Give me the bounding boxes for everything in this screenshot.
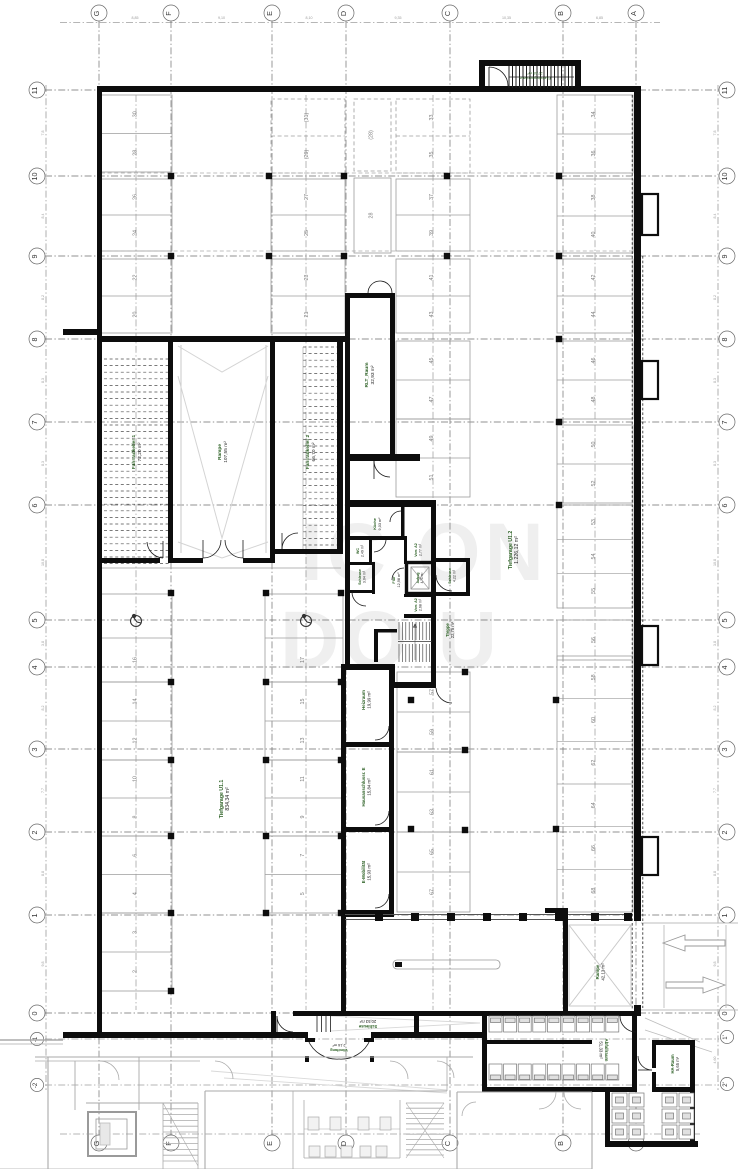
svg-text:10: 10 — [720, 173, 729, 181]
svg-text:8,3: 8,3 — [41, 461, 45, 466]
svg-text:58: 58 — [591, 674, 597, 680]
svg-text:9: 9 — [30, 255, 39, 259]
svg-text:8,8: 8,8 — [41, 871, 45, 876]
svg-text:10,8: 10,8 — [713, 559, 717, 566]
svg-text:2: 2 — [133, 970, 139, 973]
svg-text:2: 2 — [720, 831, 729, 835]
svg-text:67: 67 — [430, 889, 436, 895]
svg-text:8: 8 — [720, 338, 729, 342]
svg-text:39: 39 — [429, 230, 435, 236]
svg-text:C: C — [443, 1141, 452, 1146]
svg-text:-2: -2 — [33, 1082, 39, 1088]
svg-text:12,98 m²: 12,98 m² — [397, 572, 401, 588]
svg-text:28: 28 — [133, 150, 139, 156]
svg-text:(29): (29) — [304, 150, 310, 160]
svg-text:47: 47 — [429, 397, 435, 403]
svg-text:Abfallraum: Abfallraum — [604, 1039, 609, 1062]
svg-text:7,7: 7,7 — [713, 788, 717, 793]
svg-text:43: 43 — [429, 312, 435, 318]
svg-text:Flur: Flur — [392, 576, 396, 584]
svg-text:59: 59 — [430, 729, 436, 735]
svg-text:66,70 m²: 66,70 m² — [311, 442, 317, 461]
svg-text:5: 5 — [720, 619, 729, 623]
svg-text:Schleuse: Schleuse — [358, 1024, 377, 1029]
svg-text:6: 6 — [133, 854, 139, 857]
svg-text:Aufzug: Aufzug — [416, 573, 420, 584]
svg-text:C: C — [443, 11, 452, 16]
svg-text:D: D — [339, 11, 348, 16]
svg-text:Hausanschlussr. E: Hausanschlussr. E — [361, 767, 366, 806]
svg-text:2: 2 — [30, 831, 39, 835]
svg-text:24: 24 — [133, 230, 139, 236]
svg-text:2,16 m²: 2,16 m² — [332, 1043, 346, 1047]
svg-text:12: 12 — [133, 738, 139, 744]
svg-text:11: 11 — [300, 776, 306, 782]
svg-text:49: 49 — [429, 436, 435, 442]
svg-text:44: 44 — [591, 312, 597, 318]
svg-text:9,35: 9,35 — [395, 16, 402, 20]
svg-text:5: 5 — [300, 892, 306, 895]
svg-text:52: 52 — [591, 481, 597, 487]
svg-text:4,60: 4,60 — [713, 1057, 717, 1064]
svg-text:9,8: 9,8 — [41, 962, 45, 967]
svg-text:14: 14 — [133, 699, 139, 705]
svg-text:0: 0 — [720, 1012, 729, 1016]
svg-text:48: 48 — [591, 397, 597, 403]
svg-text:F: F — [164, 1141, 173, 1146]
svg-text:66: 66 — [591, 845, 597, 851]
svg-text:46: 46 — [591, 358, 597, 364]
svg-text:3,8: 3,8 — [713, 641, 717, 646]
svg-text:Vorr. A2: Vorr. A2 — [414, 598, 418, 611]
svg-text:55: 55 — [591, 588, 597, 594]
svg-text:2,49 m²: 2,49 m² — [361, 544, 365, 557]
svg-text:5,65 m²: 5,65 m² — [675, 1056, 680, 1071]
svg-text:15,84 m²: 15,84 m² — [366, 778, 371, 796]
svg-text:19,99 m²: 19,99 m² — [366, 691, 371, 709]
svg-text:2': 2' — [723, 1082, 729, 1086]
svg-text:3: 3 — [720, 748, 729, 752]
svg-text:Heizraum: Heizraum — [361, 690, 366, 710]
svg-text:7: 7 — [300, 854, 306, 857]
svg-text:6: 6 — [30, 504, 39, 508]
svg-text:8,85: 8,85 — [132, 16, 139, 20]
svg-text:38: 38 — [591, 195, 597, 201]
svg-text:32,93 m²: 32,93 m² — [370, 365, 376, 384]
svg-text:Tiefgarage U1.1: Tiefgarage U1.1 — [219, 780, 225, 819]
svg-text:RLT_Raum: RLT_Raum — [364, 363, 370, 388]
svg-text:-1: -1 — [33, 1036, 39, 1042]
svg-text:Treppe: Treppe — [445, 622, 450, 636]
svg-text:20: 20 — [133, 312, 139, 318]
svg-text:Rampe: Rampe — [217, 444, 223, 460]
svg-text:10: 10 — [133, 776, 139, 782]
svg-text:36: 36 — [591, 151, 597, 157]
svg-text:22,75 m²: 22,75 m² — [450, 621, 455, 638]
svg-text:42: 42 — [591, 275, 597, 281]
svg-text:51,33 m²: 51,33 m² — [599, 1041, 604, 1059]
svg-text:63: 63 — [430, 809, 436, 815]
svg-text:D: D — [339, 1141, 348, 1146]
svg-text:1.226,12 m²: 1.226,12 m² — [514, 536, 520, 564]
svg-text:Windfang: Windfang — [330, 1048, 348, 1052]
svg-text:0: 0 — [30, 1012, 39, 1016]
svg-text:40: 40 — [591, 232, 597, 238]
svg-text:11: 11 — [30, 87, 39, 94]
svg-text:Fahrradkeller 1: Fahrradkeller 1 — [131, 434, 137, 469]
svg-text:27,65 m²: 27,65 m² — [527, 71, 543, 75]
svg-text:50: 50 — [591, 442, 597, 448]
svg-text:8,2: 8,2 — [41, 295, 45, 300]
svg-text:68: 68 — [591, 888, 597, 894]
svg-text:9,8: 9,8 — [713, 962, 717, 967]
svg-text:4: 4 — [720, 666, 729, 670]
svg-text:13: 13 — [300, 738, 306, 744]
svg-text:Schleuse: Schleuse — [358, 569, 362, 585]
svg-text:2,68 m²: 2,68 m² — [419, 598, 423, 611]
svg-text:15,93 m²: 15,93 m² — [366, 863, 371, 881]
svg-text:54: 54 — [591, 554, 597, 560]
svg-text:3,8: 3,8 — [41, 641, 45, 646]
svg-text:Schleuse: Schleuse — [448, 568, 452, 584]
svg-text:53: 53 — [591, 519, 597, 525]
svg-text:8,3: 8,3 — [713, 378, 717, 383]
svg-text:7: 7 — [30, 421, 39, 425]
svg-text:6: 6 — [720, 504, 729, 508]
svg-text:22: 22 — [133, 275, 139, 281]
svg-text:3,04 m²: 3,04 m² — [363, 570, 367, 583]
svg-text:F: F — [164, 11, 173, 16]
svg-text:35: 35 — [429, 152, 435, 158]
svg-text:8: 8 — [133, 816, 139, 819]
svg-text:5: 5 — [30, 619, 39, 623]
svg-text:65: 65 — [430, 849, 436, 855]
svg-text:10: 10 — [30, 173, 39, 181]
svg-text:8,10: 8,10 — [306, 16, 313, 20]
svg-text:11: 11 — [720, 87, 729, 94]
svg-text:17: 17 — [300, 657, 306, 663]
svg-text:8,4: 8,4 — [41, 214, 45, 219]
svg-text:7,8: 7,8 — [41, 131, 45, 136]
svg-text:Vorr. A2: Vorr. A2 — [414, 543, 418, 556]
svg-text:8,4: 8,4 — [713, 214, 717, 219]
svg-text:E: E — [265, 1141, 274, 1146]
svg-text:Tiefgarage U1.2: Tiefgarage U1.2 — [508, 531, 514, 570]
svg-text:7: 7 — [720, 421, 729, 425]
svg-text:15: 15 — [300, 699, 306, 705]
svg-text:16: 16 — [133, 657, 139, 663]
svg-text:9: 9 — [720, 255, 729, 259]
svg-text:8,2: 8,2 — [713, 295, 717, 300]
svg-text:4,22 m²: 4,22 m² — [453, 569, 457, 582]
svg-text:9,10: 9,10 — [218, 16, 225, 20]
svg-text:B: B — [556, 11, 565, 16]
svg-text:8,2: 8,2 — [713, 706, 717, 711]
svg-text:61: 61 — [430, 769, 436, 775]
svg-text:9,03 m²: 9,03 m² — [378, 517, 382, 531]
svg-text:10,35: 10,35 — [502, 16, 511, 20]
svg-text:Fluchttreppenhaus: Fluchttreppenhaus — [519, 76, 551, 80]
svg-text:21: 21 — [304, 312, 310, 318]
svg-text:6,85: 6,85 — [596, 16, 603, 20]
svg-text:60: 60 — [591, 717, 597, 723]
svg-text:33: 33 — [429, 115, 435, 121]
svg-text:4,71 m²: 4,71 m² — [420, 573, 424, 584]
svg-text:72,20 m²: 72,20 m² — [137, 442, 143, 461]
svg-text:834,34 m²: 834,34 m² — [225, 787, 231, 811]
svg-text:41: 41 — [429, 275, 435, 281]
svg-text:42,13 m²: 42,13 m² — [600, 963, 605, 981]
svg-text:7,8: 7,8 — [713, 131, 717, 136]
svg-text:Küche: Küche — [373, 518, 377, 530]
svg-text:10,8: 10,8 — [41, 559, 45, 566]
svg-text:8,3: 8,3 — [713, 461, 717, 466]
svg-text:27: 27 — [304, 194, 310, 200]
svg-text:62: 62 — [591, 760, 597, 766]
svg-text:8,2: 8,2 — [41, 706, 45, 711]
svg-text:Fahrradkeller 2: Fahrradkeller 2 — [305, 434, 311, 469]
svg-text:56: 56 — [591, 637, 597, 643]
svg-text:45: 45 — [429, 358, 435, 364]
svg-text:23: 23 — [304, 275, 310, 281]
svg-text:64: 64 — [591, 802, 597, 808]
svg-text:4: 4 — [30, 666, 39, 670]
svg-text:B: B — [556, 1141, 565, 1146]
svg-text:28: 28 — [369, 213, 375, 219]
svg-text:4: 4 — [133, 892, 139, 895]
svg-text:9: 9 — [300, 816, 306, 819]
svg-text:Rampe: Rampe — [595, 964, 600, 979]
svg-text:25: 25 — [304, 230, 310, 236]
svg-text:51: 51 — [429, 475, 435, 481]
svg-text:E-Mobilität: E-Mobilität — [361, 860, 366, 883]
svg-text:E: E — [265, 11, 274, 16]
svg-text:107,55 m²: 107,55 m² — [223, 441, 229, 463]
svg-text:A: A — [629, 11, 638, 16]
svg-text:8,8: 8,8 — [713, 871, 717, 876]
svg-text:8,3: 8,3 — [41, 378, 45, 383]
svg-text:37: 37 — [429, 194, 435, 200]
svg-text:1: 1 — [720, 914, 729, 918]
svg-text:G: G — [92, 10, 101, 16]
svg-text:HA-Raum: HA-Raum — [670, 1054, 675, 1073]
svg-text:2,77 m²: 2,77 m² — [419, 543, 423, 556]
svg-text:3: 3 — [30, 748, 39, 752]
svg-text:30: 30 — [133, 111, 139, 117]
svg-text:(28): (28) — [369, 130, 375, 140]
svg-text:34: 34 — [591, 112, 597, 118]
svg-text:7,7: 7,7 — [41, 788, 45, 793]
svg-text:3: 3 — [133, 931, 139, 934]
svg-text:(31): (31) — [304, 113, 310, 123]
svg-text:1: 1 — [30, 914, 39, 918]
svg-text:WC: WC — [356, 548, 360, 554]
svg-text:26: 26 — [133, 194, 139, 200]
svg-text:1': 1' — [723, 1035, 729, 1039]
svg-text:8: 8 — [30, 338, 39, 342]
svg-text:57: 57 — [430, 689, 436, 695]
svg-text:20,53 m²: 20,53 m² — [359, 1019, 376, 1024]
